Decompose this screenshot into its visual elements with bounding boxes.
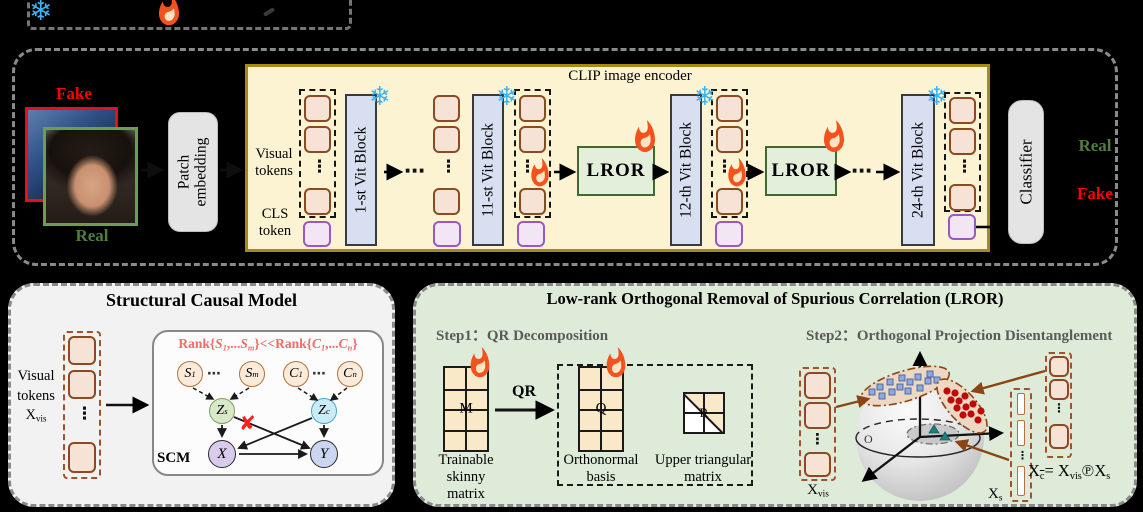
vit-block-12-label: 12-th Vit Block	[677, 122, 694, 218]
vit-block-1: 1-st Vit Block	[345, 94, 377, 246]
snowflake-icon: ❄	[29, 0, 52, 25]
xs-vector	[1017, 420, 1025, 446]
fire-icon	[466, 346, 494, 380]
xs-vector	[1017, 466, 1025, 496]
vertical-ellipsis: ⋮	[1017, 450, 1028, 461]
output-real-label: Real	[1066, 136, 1124, 156]
unit-sphere	[856, 373, 984, 501]
cls-token	[715, 221, 743, 247]
matrix-m-letter: M	[445, 401, 487, 418]
visual-tokens-label-1: Visual	[248, 146, 300, 163]
vertical-ellipsis: ⋮	[1053, 402, 1065, 414]
fire-icon	[602, 346, 630, 380]
node-zs: Zs	[209, 398, 235, 424]
node-x: X	[208, 440, 236, 468]
vit-block-12: 12-th Vit Block	[670, 94, 702, 246]
vertical-ellipsis: ⋮	[440, 159, 457, 176]
scm-visual-tokens-label: Visual tokens Xvis	[8, 367, 64, 426]
visual-token	[716, 126, 743, 153]
fire-icon	[819, 119, 849, 155]
node-y: Y	[310, 440, 338, 468]
visual-token	[1049, 424, 1069, 449]
matrix-r: R	[683, 392, 725, 434]
visual-token	[804, 452, 831, 477]
xs-label: Xs	[988, 486, 1002, 504]
output-fake-label: Fake	[1066, 184, 1124, 204]
xs-vector	[1017, 393, 1025, 415]
visual-token	[949, 97, 976, 124]
visual-token	[68, 336, 96, 365]
scm-panel-title: Structural Causal Model	[8, 290, 395, 311]
lror-module-2-label: LROR	[772, 160, 831, 182]
visual-token	[304, 188, 331, 215]
horizontal-ellipsis: ⋯	[851, 161, 872, 182]
lror-panel-title: Low-rank Orthogonal Removal of Spurious …	[413, 289, 1137, 309]
visual-token	[1049, 356, 1069, 377]
patch-embedding-label-1: Patch	[176, 138, 193, 207]
xvis-label: Xvis	[796, 482, 840, 500]
visual-token	[304, 95, 331, 122]
visual-token	[804, 372, 831, 399]
vertical-ellipsis: ⋮	[956, 159, 973, 176]
horizontal-ellipsis: ⋯	[312, 367, 326, 381]
visual-token	[68, 370, 96, 399]
visual-tokens-label: Visual tokens	[248, 146, 300, 179]
fake-input-label: Fake	[48, 84, 100, 104]
real-image	[43, 127, 138, 226]
patch-embedding-block: Patch embedding	[168, 112, 218, 232]
cls-token	[517, 221, 545, 247]
visual-token	[519, 188, 546, 215]
step2-label: Step2：Orthogonal Projection Disentanglem…	[806, 324, 1112, 345]
scm-xvis-label: Xvis	[8, 406, 64, 426]
vit-block-11: 11-st Vit Block	[472, 94, 504, 246]
vertical-ellipsis: ⋮	[76, 406, 93, 423]
visual-token	[716, 188, 743, 215]
visual-tokens-label-2: tokens	[248, 163, 300, 180]
node-s1: S1	[177, 361, 203, 387]
snowflake-icon: ❄	[369, 84, 391, 110]
cls-token-label: CLS token	[250, 206, 300, 239]
horizontal-ellipsis: ⋯	[207, 367, 221, 381]
visual-token	[68, 442, 96, 473]
visual-token	[304, 126, 331, 153]
snowflake-icon: ❄	[926, 84, 948, 110]
vertical-ellipsis: ⋮	[810, 432, 825, 447]
matrix-q-caption-2: basis	[556, 469, 646, 486]
matrix-r-caption: Upper triangular matrix	[650, 452, 756, 486]
origin-label: O	[864, 432, 873, 447]
cls-token	[433, 221, 461, 247]
lror-module-1-label: LROR	[587, 160, 646, 182]
vit-block-24-label: 24-th Vit Block	[909, 122, 926, 218]
cls-token-label-1: CLS	[250, 206, 300, 223]
node-sm: Sm	[239, 361, 265, 387]
fire-icon	[630, 119, 660, 155]
scm-label: SCM	[157, 450, 190, 467]
visual-token	[519, 126, 546, 153]
visual-token	[716, 95, 743, 122]
matrix-r-caption-1: Upper triangular	[650, 452, 756, 469]
visual-token	[433, 95, 460, 122]
patch-embedding-label-2: embedding	[193, 138, 210, 207]
vit-block-1-label: 1-st Vit Block	[352, 127, 369, 214]
vit-block-11-label: 11-st Vit Block	[479, 123, 496, 217]
fire-icon	[724, 157, 750, 189]
projection-formula: Xc= Xvis℗Xs	[1028, 461, 1110, 482]
scm-visual-tokens-label-1: Visual	[8, 367, 64, 387]
cls-token	[948, 214, 976, 240]
visual-token	[433, 126, 460, 153]
visual-token	[433, 188, 460, 215]
vit-block-24: 24-th Vit Block	[901, 94, 935, 246]
matrix-m-caption-2: matrix	[420, 486, 512, 503]
classifier-block: Classifier	[1008, 100, 1044, 244]
real-input-label: Real	[66, 226, 118, 246]
snowflake-icon: ❄	[496, 84, 518, 110]
figure-canvas: ❄ Fake Real Patch embedding CLIP image e…	[0, 0, 1143, 512]
fire-icon	[154, 0, 184, 28]
horizontal-ellipsis: ⋯	[404, 161, 425, 182]
visual-token	[1049, 379, 1069, 400]
cls-token	[303, 221, 331, 247]
visual-token	[949, 128, 976, 155]
matrix-q-letter: Q	[580, 401, 622, 418]
matrix-q-caption-1: Orthonormal	[556, 452, 646, 469]
classifier-label: Classifier	[1016, 139, 1035, 204]
matrix-r-letter: R	[685, 405, 723, 421]
node-c1: C1	[283, 361, 309, 387]
visual-token	[949, 184, 976, 211]
qr-label: QR	[502, 383, 546, 401]
vertical-ellipsis: ⋮	[311, 159, 328, 176]
blocked-edge-cross: ✘	[239, 411, 256, 435]
matrix-q-caption: Orthonormal basis	[556, 452, 646, 486]
snowflake-icon: ❄	[694, 84, 716, 110]
visual-token	[804, 402, 831, 429]
matrix-m-caption: Trainable skinny matrix	[420, 452, 512, 503]
node-cn: Cn	[337, 361, 363, 387]
fire-icon	[527, 157, 553, 189]
matrix-r-caption-2: matrix	[650, 469, 756, 486]
node-zc: Zc	[311, 398, 337, 424]
cls-token-label-2: token	[250, 223, 300, 240]
rank-inequality: Rank{S1,...Sm}<<Rank{C1,...Cn}	[158, 336, 378, 352]
visual-token	[519, 95, 546, 122]
scm-visual-tokens-label-2: tokens	[8, 387, 64, 407]
step1-label: Step1：QR Decomposition	[436, 324, 608, 345]
matrix-m-caption-1: Trainable skinny	[420, 452, 512, 486]
legend-box	[27, 0, 352, 30]
